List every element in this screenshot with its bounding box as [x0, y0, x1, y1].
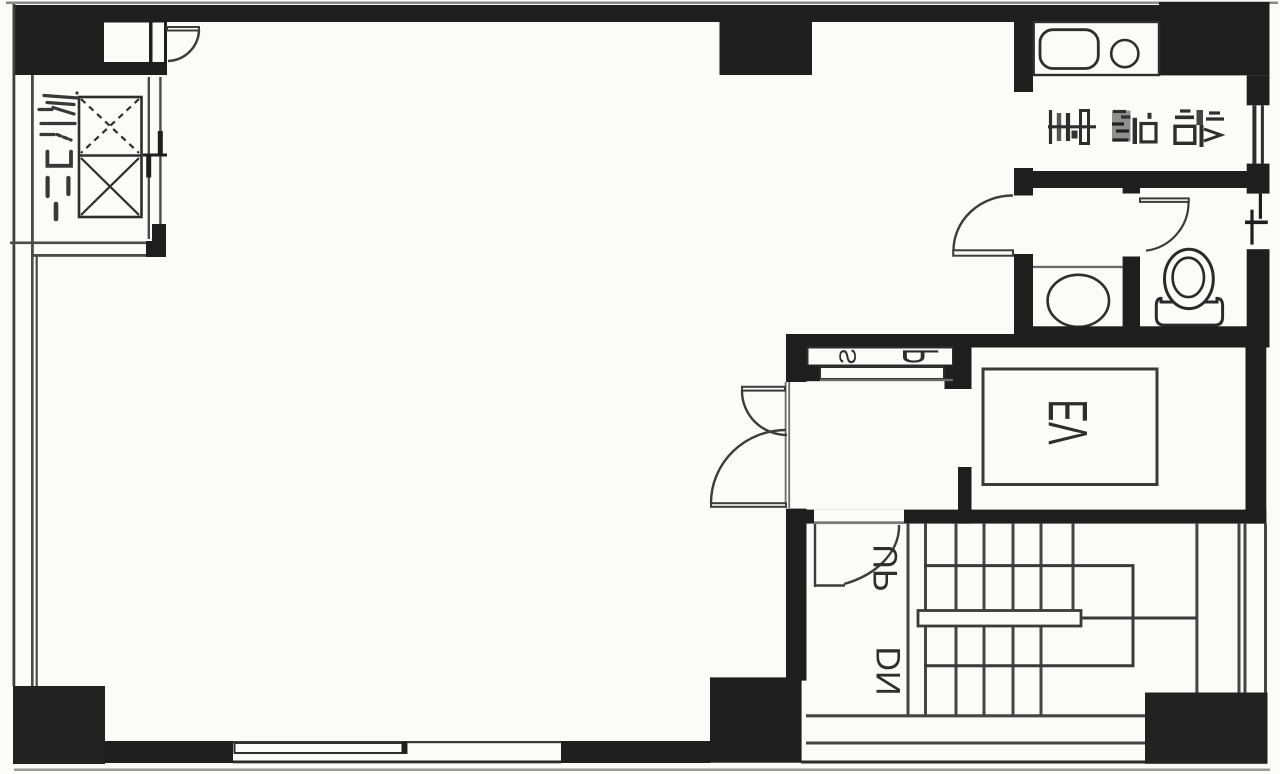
svg-text:P: P	[893, 349, 950, 364]
svg-text:UP: UP	[867, 544, 905, 591]
svg-text:S: S	[835, 348, 862, 364]
svg-text:EV: EV	[1036, 399, 1099, 445]
svg-text:DN: DN	[870, 646, 908, 695]
